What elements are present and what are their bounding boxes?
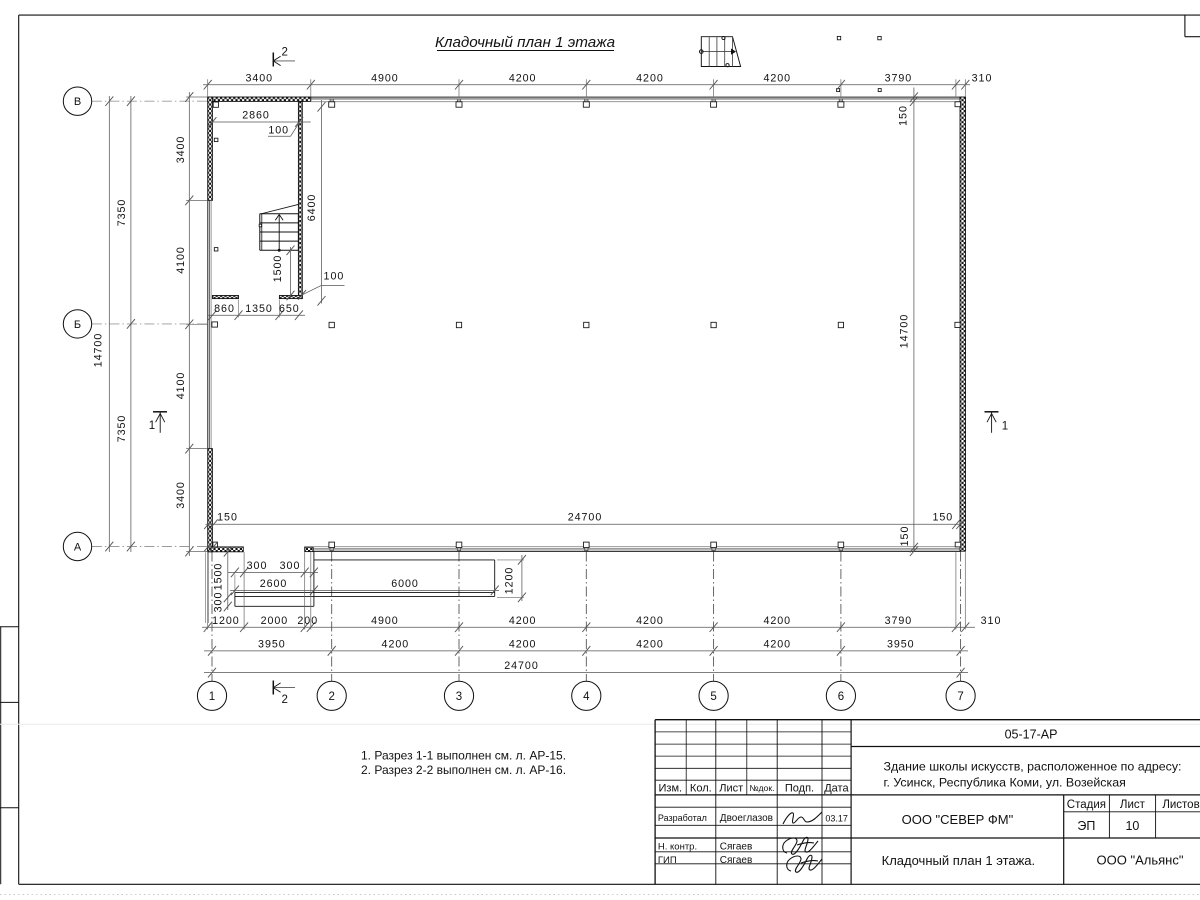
svg-text:г. Усинск, Республика Коми, ул: г. Усинск, Республика Коми, ул. Возейска… [884, 776, 1126, 790]
svg-text:Подп.: Подп. [785, 782, 814, 794]
svg-text:Б: Б [74, 319, 81, 331]
svg-text:1: 1 [209, 691, 215, 703]
svg-text:4100: 4100 [175, 372, 187, 400]
svg-text:ООО "Альянс": ООО "Альянс" [1097, 852, 1184, 867]
svg-text:4200: 4200 [763, 72, 791, 84]
svg-text:4200: 4200 [636, 72, 664, 84]
svg-text:2600: 2600 [260, 578, 288, 590]
svg-text:Дата: Дата [824, 782, 849, 794]
svg-text:2860: 2860 [242, 109, 270, 121]
svg-text:Лист: Лист [1120, 799, 1146, 811]
svg-text:300: 300 [280, 560, 301, 572]
svg-text:10: 10 [1125, 819, 1139, 833]
svg-text:4900: 4900 [371, 72, 399, 84]
svg-text:150: 150 [899, 526, 911, 547]
svg-text:2: 2 [281, 46, 287, 58]
svg-text:3790: 3790 [885, 615, 913, 627]
svg-text:200: 200 [297, 615, 318, 627]
svg-text:Здание школы искусств, располо: Здание школы искусств, расположенное по … [884, 760, 1182, 774]
svg-text:1200: 1200 [212, 615, 240, 627]
svg-text:4200: 4200 [636, 615, 664, 627]
svg-text:150: 150 [898, 105, 910, 126]
svg-text:3950: 3950 [258, 639, 286, 651]
svg-text:Сягаев: Сягаев [720, 855, 753, 866]
svg-text:150: 150 [217, 512, 238, 524]
svg-text:1200: 1200 [504, 567, 516, 595]
svg-text:4200: 4200 [509, 72, 537, 84]
svg-text:2: 2 [328, 691, 334, 703]
svg-text:4200: 4200 [636, 639, 664, 651]
svg-text:4200: 4200 [509, 615, 537, 627]
svg-text:24700: 24700 [568, 512, 602, 524]
svg-text:03.17: 03.17 [825, 814, 848, 824]
svg-text:1: 1 [149, 420, 155, 432]
svg-text:1500: 1500 [213, 563, 225, 591]
svg-text:150: 150 [932, 512, 953, 524]
svg-text:14700: 14700 [899, 314, 911, 348]
svg-text:ООО "СЕВЕР ФМ": ООО "СЕВЕР ФМ" [902, 812, 1014, 827]
svg-text:ГИП: ГИП [658, 855, 677, 866]
svg-text:310: 310 [972, 72, 993, 84]
svg-text:310: 310 [981, 615, 1002, 627]
svg-text:4100: 4100 [175, 246, 187, 274]
svg-text:ЭП: ЭП [1077, 819, 1095, 833]
svg-text:6000: 6000 [391, 578, 419, 590]
svg-text:6400: 6400 [306, 194, 318, 222]
svg-text:Изм.: Изм. [659, 782, 683, 794]
svg-text:300: 300 [247, 560, 268, 572]
svg-text:5: 5 [710, 691, 716, 703]
svg-text:Листов: Листов [1162, 799, 1199, 811]
svg-text:В: В [74, 96, 81, 108]
svg-text:3400: 3400 [175, 481, 187, 509]
svg-text:1350: 1350 [245, 303, 273, 315]
svg-text:Кладочный план 1 этажа: Кладочный план 1 этажа [435, 34, 615, 51]
svg-text:300: 300 [213, 592, 225, 613]
svg-text:100: 100 [268, 125, 289, 137]
svg-text:7350: 7350 [116, 199, 128, 227]
svg-text:4200: 4200 [763, 615, 791, 627]
svg-text:Двоеглазов: Двоеглазов [720, 813, 773, 824]
svg-text:Кладочный план 1 этажа.: Кладочный план 1 этажа. [882, 853, 1036, 868]
svg-text:2000: 2000 [261, 615, 289, 627]
svg-text:Стадия: Стадия [1067, 799, 1106, 811]
svg-text:№док.: №док. [749, 783, 774, 793]
svg-text:1500: 1500 [272, 255, 284, 283]
svg-text:3790: 3790 [885, 72, 913, 84]
svg-text:4900: 4900 [371, 615, 399, 627]
svg-text:2. Разрез 2-2 выполнен см. л.: 2. Разрез 2-2 выполнен см. л. АР-16. [361, 763, 566, 777]
svg-text:1. Разрез 1-1 выполнен см. л.: 1. Разрез 1-1 выполнен см. л. АР-15. [361, 749, 566, 763]
svg-text:24700: 24700 [504, 660, 538, 672]
svg-text:14700: 14700 [93, 333, 105, 367]
svg-text:А: А [74, 541, 82, 553]
svg-text:Сягаев: Сягаев [720, 841, 753, 852]
svg-text:Разработал: Разработал [658, 813, 707, 823]
svg-text:4200: 4200 [763, 639, 791, 651]
svg-text:Н. контр.: Н. контр. [658, 841, 697, 852]
svg-text:2: 2 [281, 694, 287, 706]
svg-text:6: 6 [838, 691, 844, 703]
svg-text:1: 1 [1002, 421, 1008, 433]
svg-text:05-17-АР: 05-17-АР [1005, 728, 1058, 742]
svg-text:3400: 3400 [245, 72, 273, 84]
svg-text:650: 650 [279, 303, 300, 315]
svg-text:4200: 4200 [382, 639, 410, 651]
svg-text:Лист: Лист [719, 782, 743, 794]
svg-text:4: 4 [583, 691, 590, 703]
svg-text:100: 100 [324, 270, 345, 282]
svg-text:3950: 3950 [887, 639, 915, 651]
svg-text:4200: 4200 [509, 639, 537, 651]
svg-text:860: 860 [214, 303, 235, 315]
svg-text:7: 7 [957, 691, 963, 703]
svg-text:3: 3 [456, 691, 462, 703]
svg-text:7350: 7350 [116, 415, 128, 443]
svg-text:Кол.: Кол. [690, 782, 712, 794]
svg-text:3400: 3400 [175, 136, 187, 164]
